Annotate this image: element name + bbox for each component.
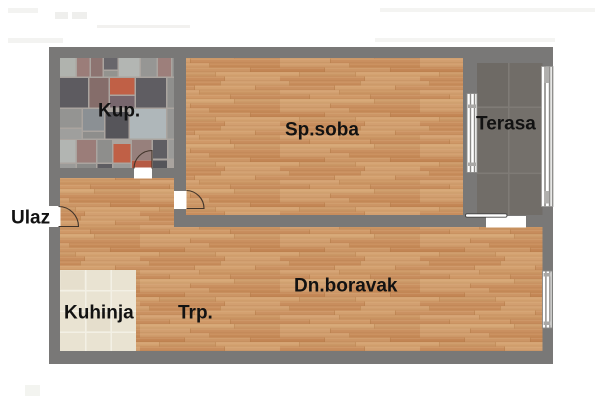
svg-text:Terasa: Terasa xyxy=(476,114,536,135)
svg-text:Sp.soba: Sp.soba xyxy=(285,120,359,141)
svg-text:Dn.boravak: Dn.boravak xyxy=(294,276,398,297)
svg-text:Trp.: Trp. xyxy=(178,303,213,324)
svg-text:Ulaz: Ulaz xyxy=(11,208,50,229)
svg-text:Kup.: Kup. xyxy=(98,101,140,122)
svg-text:Kuhinja: Kuhinja xyxy=(64,303,134,324)
